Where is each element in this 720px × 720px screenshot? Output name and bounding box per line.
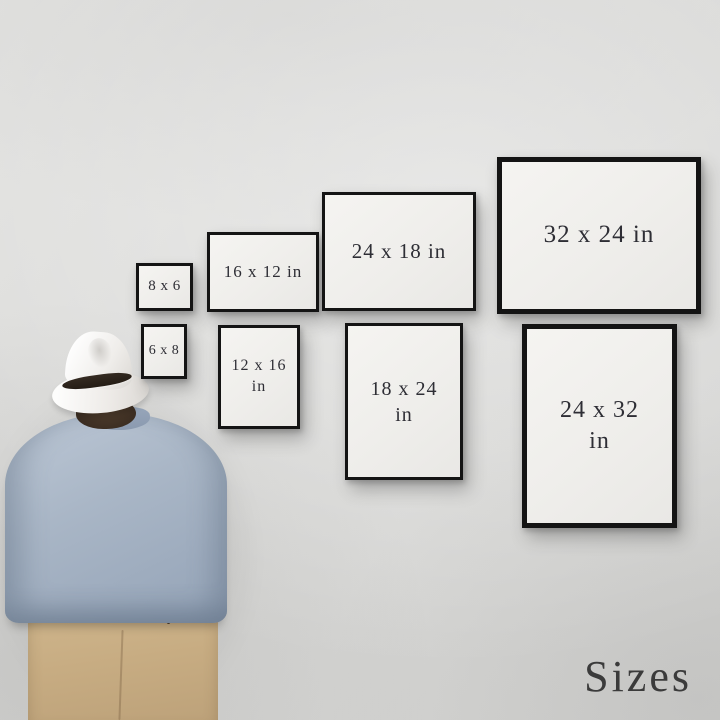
frame-size-label: 12 x 16 in <box>232 356 287 398</box>
frame-size-text: 6 x 8 <box>149 342 180 360</box>
frame-mat: 16 x 12 in <box>210 235 316 309</box>
frame-size-unit: in <box>371 402 438 428</box>
frame-32x24-landscape: 32 x 24 in <box>497 157 701 314</box>
frame-size-unit: in <box>560 426 639 457</box>
frame-mat: 32 x 24 in <box>502 162 696 309</box>
frame-size-label: 18 x 24 in <box>371 376 438 428</box>
frame-16x12-landscape: 16 x 12 in <box>207 232 319 312</box>
frame-size-text: 8 x 6 <box>148 277 181 297</box>
frame-24x18-landscape: 24 x 18 in <box>322 192 476 311</box>
frame-size-label: 8 x 6 <box>148 277 181 297</box>
frame-size-label: 32 x 24 in <box>544 219 655 252</box>
frame-mat: 24 x 18 in <box>325 195 473 308</box>
frame-size-text: 32 x 24 in <box>544 219 655 252</box>
frame-size-unit: in <box>232 377 287 398</box>
frame-mat: 18 x 24 in <box>348 326 460 477</box>
frame-size-text: 12 x 16 <box>232 356 287 377</box>
frame-size-label: 6 x 8 <box>149 342 180 360</box>
frame-12x16-portrait: 12 x 16 in <box>218 325 300 429</box>
frame-size-label: 24 x 32 in <box>560 395 639 457</box>
frame-mat: 24 x 32 in <box>527 329 672 523</box>
frame-size-text: 24 x 18 in <box>352 238 447 265</box>
frame-18x24-portrait: 18 x 24 in <box>345 323 463 480</box>
frame-6x8-portrait: 6 x 8 <box>141 324 187 379</box>
frame-size-label: 24 x 18 in <box>352 238 447 265</box>
frame-size-text: 18 x 24 <box>371 376 438 402</box>
frame-24x32-portrait: 24 x 32 in <box>522 324 677 528</box>
frame-size-text: 24 x 32 <box>560 395 639 426</box>
frame-mat: 6 x 8 <box>144 327 184 376</box>
frame-mat: 8 x 6 <box>139 266 190 308</box>
caption-sizes: Sizes <box>584 651 692 702</box>
frame-8x6-landscape: 8 x 6 <box>136 263 193 311</box>
frame-size-label: 16 x 12 in <box>224 261 302 283</box>
mockup-scene: 8 x 6 16 x 12 in 24 x 18 in 32 x 24 in 6 <box>0 0 720 720</box>
frame-mat: 12 x 16 in <box>221 328 297 426</box>
frame-size-text: 16 x 12 in <box>224 261 302 283</box>
person-figure <box>0 330 240 720</box>
person-shirt <box>5 413 227 623</box>
